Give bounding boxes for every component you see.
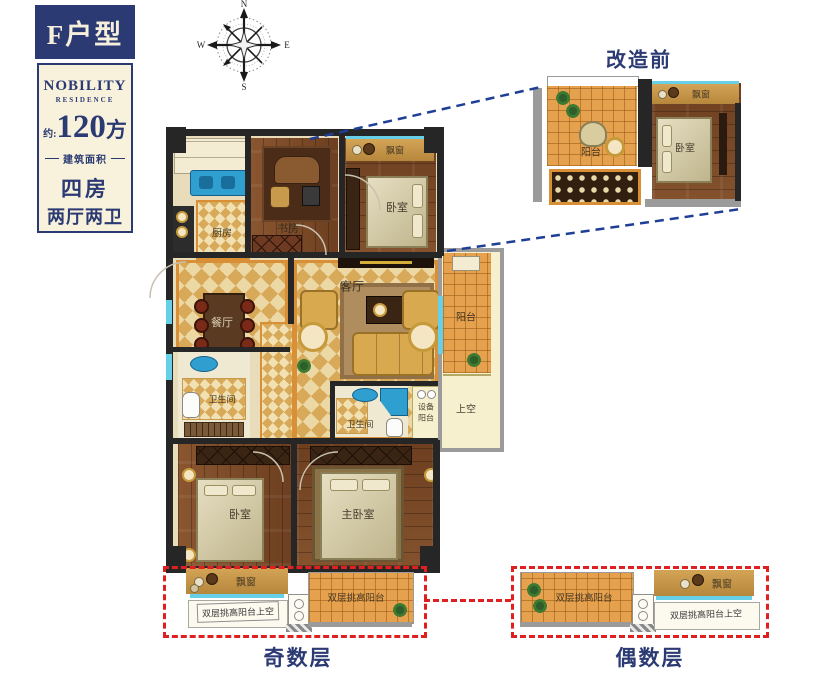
caption-rule-right: [111, 158, 125, 159]
odd-floor-outline: [163, 566, 427, 638]
wall-bathmid-left: [330, 386, 335, 438]
brand-subtitle: RESIDENCE: [39, 96, 131, 104]
pillow: [662, 125, 672, 147]
balcony-plant: [466, 352, 482, 368]
bath-mid-label: 卫生间: [346, 418, 373, 431]
pillow: [330, 479, 358, 491]
wall-dining-bath: [172, 347, 290, 352]
compass-s-label: S: [241, 82, 246, 92]
pillow: [362, 479, 390, 491]
unit-type-label: F户型: [47, 13, 124, 52]
wall-mid-horizontal: [172, 252, 442, 258]
compass-w-label: W: [197, 40, 206, 50]
side-table-left: [298, 322, 328, 352]
area-row: 约:120方: [39, 112, 131, 144]
inset-bedroom-label: 卧室: [675, 140, 695, 155]
caption-rule-left: [45, 158, 59, 159]
study-chair2: [302, 186, 320, 206]
tv-console: [338, 257, 434, 268]
equip-fixture: [427, 390, 436, 399]
inset-plan: 阳台 飘窗 卧室: [533, 75, 745, 211]
toilet-left: [182, 392, 200, 418]
decor-dot: [363, 143, 375, 155]
pillow: [412, 214, 423, 238]
wall-bedroom-master: [291, 444, 297, 568]
balcony-cabinet: [452, 256, 480, 271]
wall-top: [166, 129, 444, 136]
dining-label: 餐厅: [211, 314, 233, 330]
bedroom-top-label: 卧室: [386, 199, 408, 215]
wardrobe-master: [310, 446, 412, 465]
nightstand: [182, 468, 196, 482]
bedroom-left-label: 卧室: [229, 506, 251, 522]
bath-left-mat: [184, 422, 244, 437]
inset-divider-wall: [638, 79, 652, 167]
decor-dot: [352, 145, 362, 155]
area-unit: 方: [106, 114, 127, 144]
study-chair: [270, 186, 290, 208]
dining-chair: [194, 299, 209, 314]
area-caption: 建筑面积: [63, 151, 107, 166]
compass-rose-icon: N S E W: [196, 0, 292, 92]
annex-divider: [443, 374, 491, 376]
side-table-right: [408, 322, 438, 352]
toilet-mid: [386, 418, 403, 437]
red-connector-line: [424, 599, 511, 602]
window-left-wall: [166, 354, 172, 380]
sink-basin-right: [221, 176, 235, 189]
balcony-right-label: 阳台: [456, 309, 476, 324]
living-plant: [296, 358, 312, 374]
pillow: [232, 485, 256, 496]
brand-name: NOBILITY: [39, 78, 131, 95]
inset-deco-strip: [549, 169, 641, 205]
inset-title: 改造前: [606, 44, 672, 73]
bath-left-sink: [190, 356, 218, 372]
pillow: [412, 184, 423, 208]
pillar: [424, 127, 444, 153]
pillar: [166, 127, 186, 153]
area-prefix: 约:: [43, 125, 56, 140]
kitchen-stove: [172, 206, 194, 252]
window-left-wall2: [166, 300, 172, 324]
dining-chair: [194, 318, 209, 333]
tv-screen: [360, 261, 412, 264]
inset-tv-strip: [719, 113, 727, 175]
study-desk: [274, 156, 320, 184]
pillow: [662, 151, 672, 173]
bay-top-label: 飘窗: [386, 144, 404, 157]
layout-line1: 四房: [39, 173, 131, 203]
compass-e-label: E: [284, 40, 290, 50]
inset-wall-left: [533, 88, 542, 202]
void-right-label: 上空: [456, 401, 476, 416]
equip-fixture: [417, 390, 426, 399]
wall-kitchen-study: [245, 133, 251, 255]
inset-balcony-label: 阳台: [581, 144, 601, 159]
burner: [176, 226, 188, 238]
odd-floor-caption: 奇数层: [264, 642, 333, 672]
dining-chair: [240, 299, 255, 314]
wardrobe-bedroom-left: [196, 446, 290, 465]
equip-label-1: 设备: [418, 402, 434, 413]
wardrobe-top-bedroom: [346, 168, 360, 250]
wall-study-bedroom: [339, 133, 345, 258]
inset-bay-label: 飘窗: [692, 88, 710, 101]
dining-chair: [240, 318, 255, 333]
master-bedroom-label: 主卧室: [342, 506, 375, 522]
corridor-tile: [260, 322, 294, 442]
bath-mid-sink: [352, 388, 378, 402]
wall-bedrooms-top: [172, 438, 438, 444]
unit-type-badge: F户型: [35, 5, 135, 59]
window-balcony-wall: [438, 296, 443, 354]
pillow: [204, 485, 228, 496]
compass-n-label: N: [241, 0, 248, 9]
bath-left-label: 卫生间: [208, 393, 235, 406]
study-label: 书房: [277, 220, 299, 236]
even-floor-outline: [511, 566, 769, 638]
decor-dot: [668, 87, 679, 98]
floorplan-page: F户型 NOBILITY RESIDENCE 约:120方 建筑面积 四房 两厅…: [0, 0, 827, 673]
inset-wall-bottom: [645, 199, 741, 207]
decor-dot: [658, 90, 667, 99]
blue-dashed-line-bottom: [447, 209, 741, 251]
area-caption-row: 建筑面积: [39, 151, 131, 166]
even-floor-caption: 偶数层: [616, 642, 685, 672]
tray: [373, 303, 387, 317]
inset-side-table: [605, 137, 625, 157]
info-panel: NOBILITY RESIDENCE 约:120方 建筑面积 四房 两厅两卫: [37, 63, 133, 233]
inset-plant2: [565, 103, 581, 119]
study-rug: [262, 146, 332, 222]
inset-wall-right: [735, 103, 741, 201]
equip-label-2: 阳台: [418, 413, 434, 424]
burner: [176, 211, 188, 223]
kitchen-label: 厨房: [212, 225, 232, 240]
wall-dining-living: [288, 258, 294, 324]
sink-basin-left: [199, 176, 213, 189]
layout-line2: 两厅两卫: [39, 203, 131, 229]
wall-living-bath: [330, 381, 438, 386]
kitchen-sink: [190, 170, 248, 196]
shower: [380, 388, 408, 416]
area-value: 120: [56, 112, 106, 142]
living-label: 客厅: [340, 278, 364, 295]
